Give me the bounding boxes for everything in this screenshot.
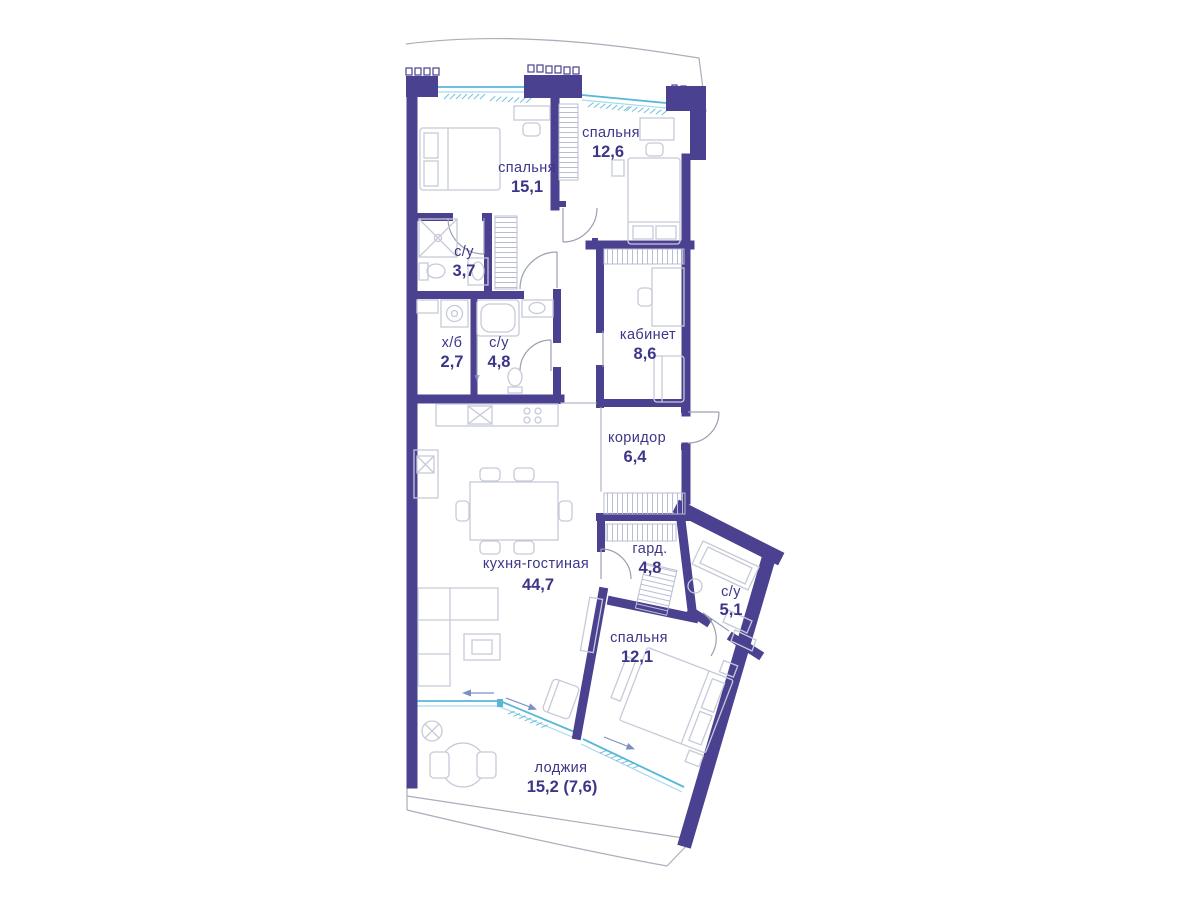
- desk: [638, 268, 684, 326]
- label-office-area: 8,6: [634, 345, 657, 363]
- label-corridor-area: 6,4: [624, 448, 648, 466]
- shelf: [417, 300, 438, 313]
- label-loggia-area: 15,2 (7,6): [527, 778, 598, 796]
- label-utility-area: 2,7: [441, 353, 464, 371]
- toilet: [419, 263, 445, 280]
- label-bathroom-3-name: с/у: [721, 584, 741, 600]
- washing-machine: [441, 300, 468, 327]
- sofa: [654, 356, 684, 402]
- sink: [522, 300, 553, 317]
- label-kitchen-living-name: кухня-гостиная: [483, 556, 589, 572]
- label-bedroom-3-area: 12,1: [621, 648, 653, 666]
- label-bathroom-1-area: 3,7: [453, 262, 476, 280]
- kitchen-counter: [436, 404, 558, 426]
- label-bedroom-1-name: спальня: [498, 160, 556, 176]
- label-wardrobe-area: 4,8: [639, 559, 662, 577]
- label-wardrobe-name: гард.: [632, 541, 667, 557]
- label-bedroom-2-name: спальня: [582, 125, 640, 141]
- bed: [612, 158, 680, 244]
- label-utility-name: х/б: [442, 335, 463, 351]
- desk: [514, 106, 550, 136]
- corner-sofa: [418, 588, 498, 686]
- armchair: [542, 678, 580, 720]
- dresser: [640, 118, 674, 156]
- label-office-name: кабинет: [620, 327, 676, 343]
- shower: [419, 219, 457, 257]
- toilet: [508, 368, 522, 393]
- label-bathroom-2-name: с/у: [489, 335, 509, 351]
- label-bedroom-1-area: 15,1: [511, 178, 543, 196]
- label-bathroom-3-area: 5,1: [720, 601, 743, 619]
- floor-plan-drawing: спальня 15,1 спальня 12,6 с/у 3,7 х/б 2,…: [0, 0, 1200, 902]
- label-bedroom-3-name: спальня: [610, 630, 668, 646]
- island-counter: [414, 450, 438, 498]
- vent-fan: [422, 721, 442, 741]
- window-arrows: [462, 690, 635, 750]
- label-loggia-name: лоджия: [535, 760, 588, 776]
- label-bedroom-2-area: 12,6: [592, 143, 624, 161]
- floor-plan: спальня 15,1 спальня 12,6 с/у 3,7 х/б 2,…: [0, 0, 1200, 902]
- dining-table: [456, 468, 572, 554]
- bed: [420, 128, 500, 190]
- coffee-table: [464, 634, 500, 660]
- label-bathroom-2-area: 4,8: [488, 353, 511, 371]
- loggia-table: [430, 743, 496, 787]
- label-bathroom-1-name: с/у: [454, 244, 474, 260]
- bathtub: [477, 300, 519, 336]
- label-kitchen-living-area: 44,7: [522, 576, 554, 594]
- label-corridor-name: коридор: [608, 430, 666, 446]
